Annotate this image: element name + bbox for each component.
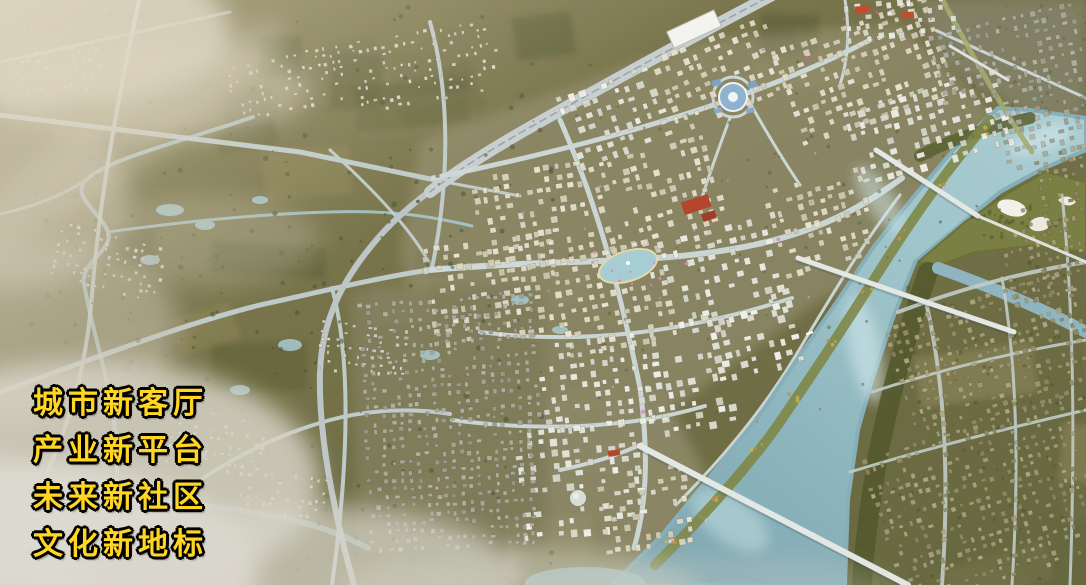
slogan-overlay: 城市新客厅 产业新平台 未来新社区 文化新地标: [33, 380, 208, 568]
slogan-line-4: 文化新地标: [33, 521, 208, 568]
slogan-line-1: 城市新客厅: [33, 380, 208, 427]
city-aerial-rendering: 城市新客厅 产业新平台 未来新社区 文化新地标: [0, 0, 1086, 585]
slogan-line-2: 产业新平台: [33, 427, 208, 474]
slogan-line-3: 未来新社区: [33, 474, 208, 521]
